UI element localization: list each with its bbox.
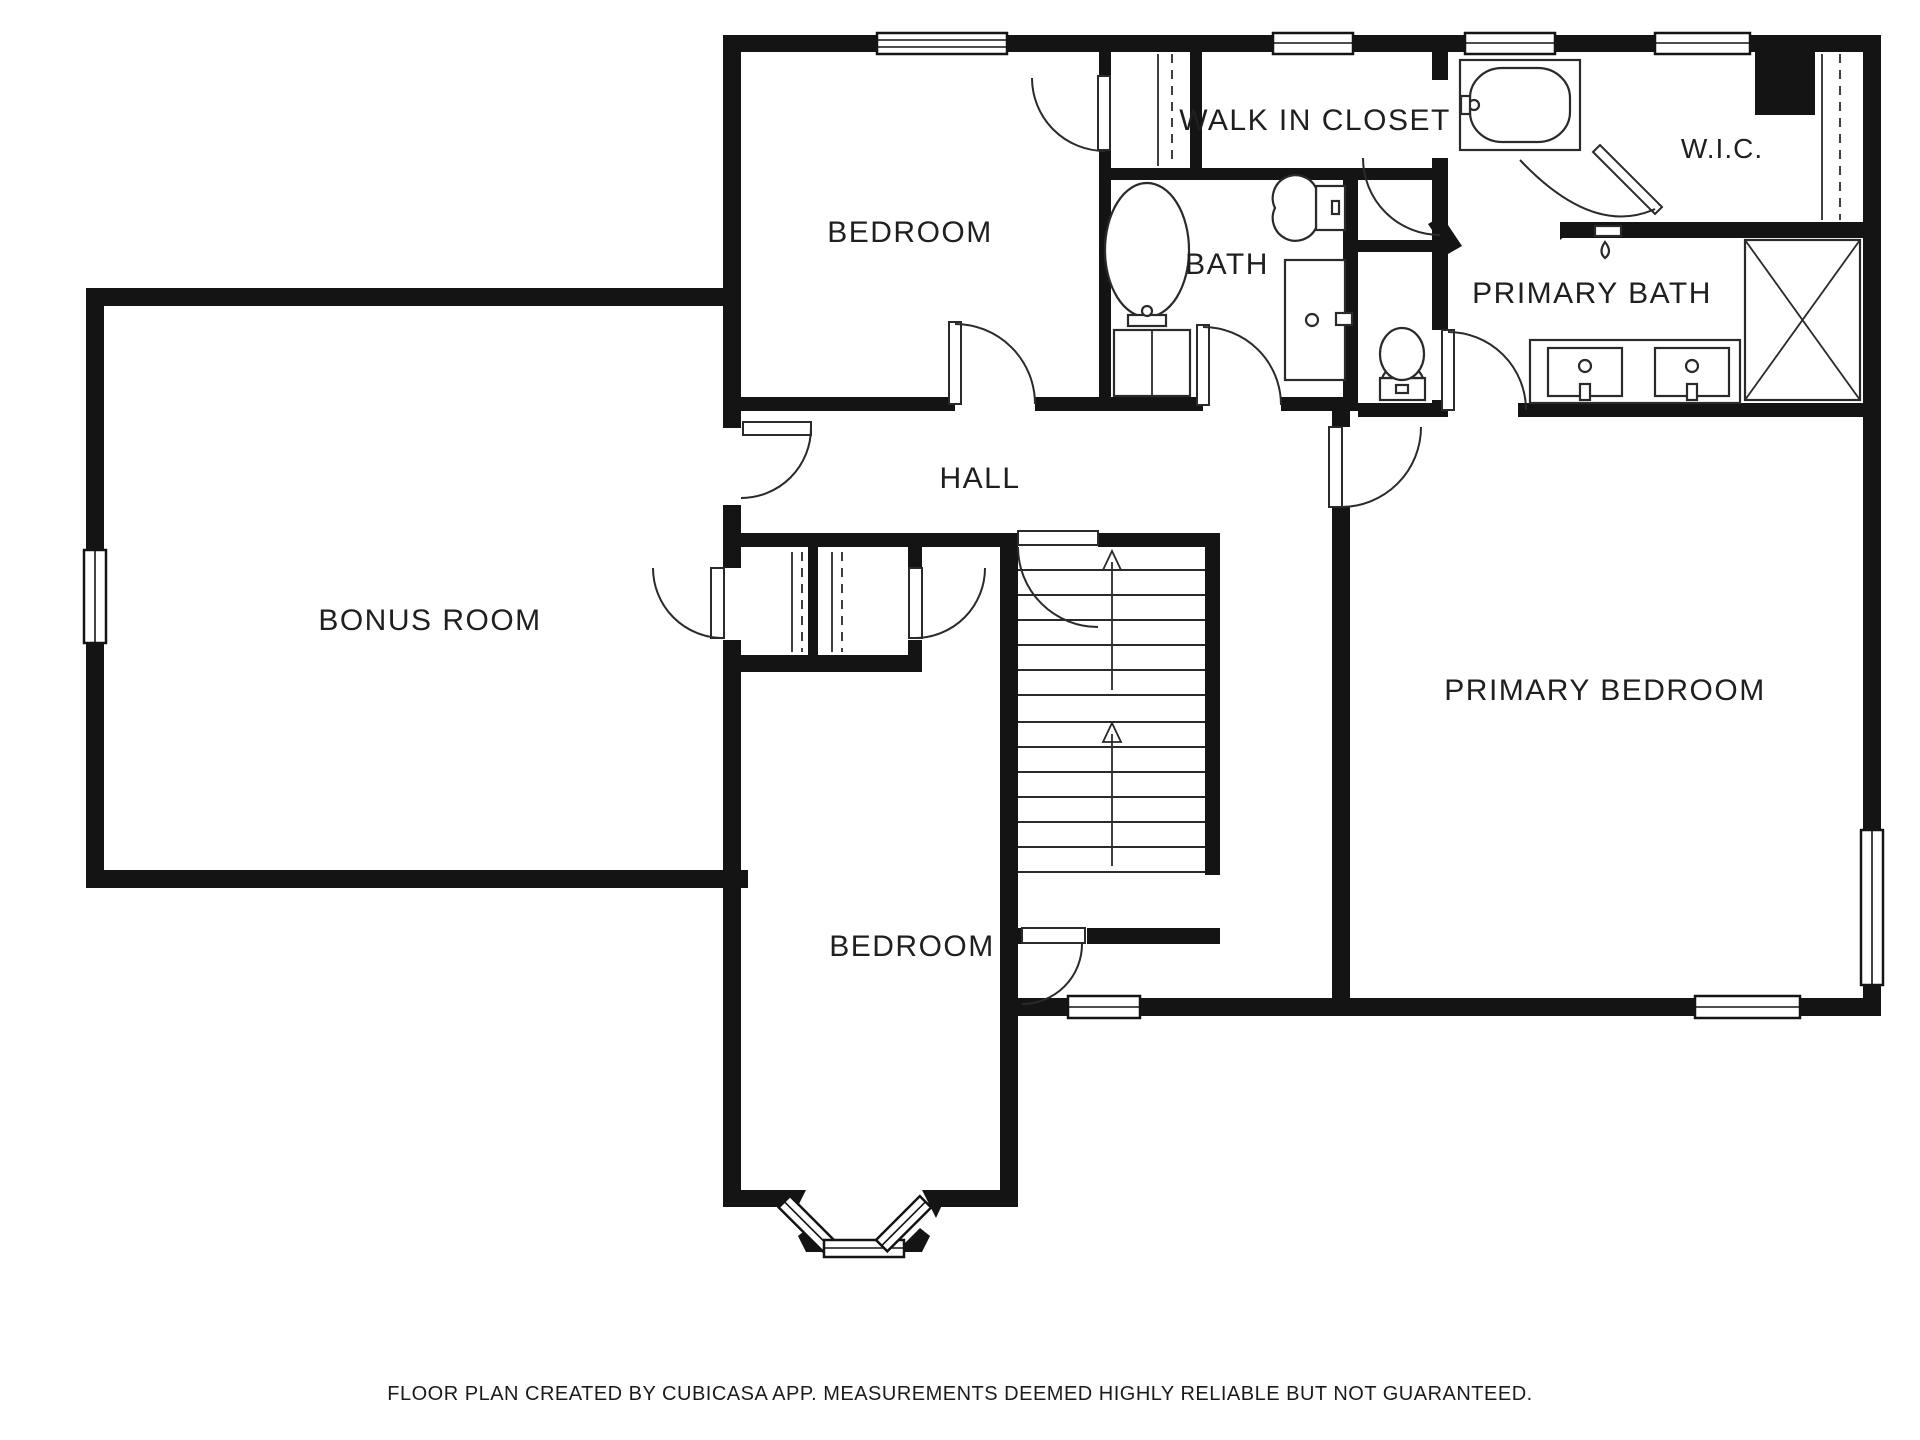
door-closet-left [653, 568, 724, 638]
door-wic-diagonal [1520, 145, 1662, 216]
wall-closetrow-bottom [1099, 168, 1432, 180]
vanity-sink-icon [1285, 260, 1352, 380]
door-bedroomtop-hall [949, 322, 1035, 404]
window-landing [1068, 996, 1140, 1018]
linen-cabinet-icon [1114, 330, 1190, 396]
label-bath: BATH [1185, 248, 1269, 281]
bathtub-icon [1105, 183, 1189, 326]
door-bedroomtop-closet [1032, 76, 1110, 151]
wall-bonus-bottom [86, 870, 748, 888]
label-primary-bedroom: PRIMARY BEDROOM [1444, 674, 1765, 707]
footer-disclaimer: FLOOR PLAN CREATED BY CUBICASA APP. MEAS… [387, 1383, 1532, 1405]
bay-window [779, 1190, 949, 1257]
wall-stairs-right [1205, 533, 1220, 875]
wall-closet-separator [808, 547, 818, 655]
door-closet-right [909, 568, 985, 638]
soaking-tub-icon [1460, 60, 1580, 150]
shower-head-icon [1595, 226, 1621, 258]
stairs [1018, 551, 1205, 872]
wall-bedroom-right [1000, 547, 1018, 1207]
door-primary-bedroom [1329, 427, 1421, 507]
wc-toilet-icon [1380, 328, 1425, 400]
shower-icon [1745, 240, 1860, 400]
wall-hall-bottom [741, 533, 1220, 547]
wall-notch-top-right [1755, 35, 1815, 115]
label-wic: W.I.C. [1681, 133, 1763, 164]
door-bath-hall [1197, 325, 1281, 405]
window-walkin-closet [1273, 33, 1353, 54]
window-top-bedroom [877, 33, 1007, 54]
window-tub [1465, 33, 1555, 54]
wall-primarybath-bottom [1358, 403, 1863, 417]
window-bonus-left [84, 550, 106, 643]
label-walk-in-closet: WALK IN CLOSET [1179, 104, 1451, 137]
door-stairs-top [1018, 531, 1098, 627]
floorplan-canvas: BEDROOM WALK IN CLOSET BATH PRIMARY BATH… [0, 0, 1920, 1440]
window-primary-bedroom-bottom [1695, 996, 1800, 1018]
wall-bonus-top [86, 288, 741, 306]
door-bonus-room [741, 422, 811, 498]
label-bonus-room: BONUS ROOM [318, 604, 541, 637]
floorplan-page: BEDROOM WALK IN CLOSET BATH PRIMARY BATH… [0, 0, 1920, 1440]
window-wic [1655, 33, 1750, 54]
toilet-icon [1273, 175, 1345, 241]
label-primary-bath: PRIMARY BATH [1472, 277, 1712, 310]
wall-wc-top [1358, 240, 1432, 252]
label-bedroom-top: BEDROOM [827, 216, 993, 249]
label-hall: HALL [939, 462, 1020, 495]
double-vanity-icon [1530, 340, 1740, 403]
window-primary-bedroom-right [1861, 830, 1883, 985]
door-primarybath-entry [1442, 330, 1526, 410]
label-bedroom-bottom: BEDROOM [829, 930, 995, 963]
wall-closets-bottom [741, 655, 922, 672]
stairs-up-arrow-2 [1103, 723, 1121, 866]
door-stairs-bottom [1022, 928, 1085, 1004]
